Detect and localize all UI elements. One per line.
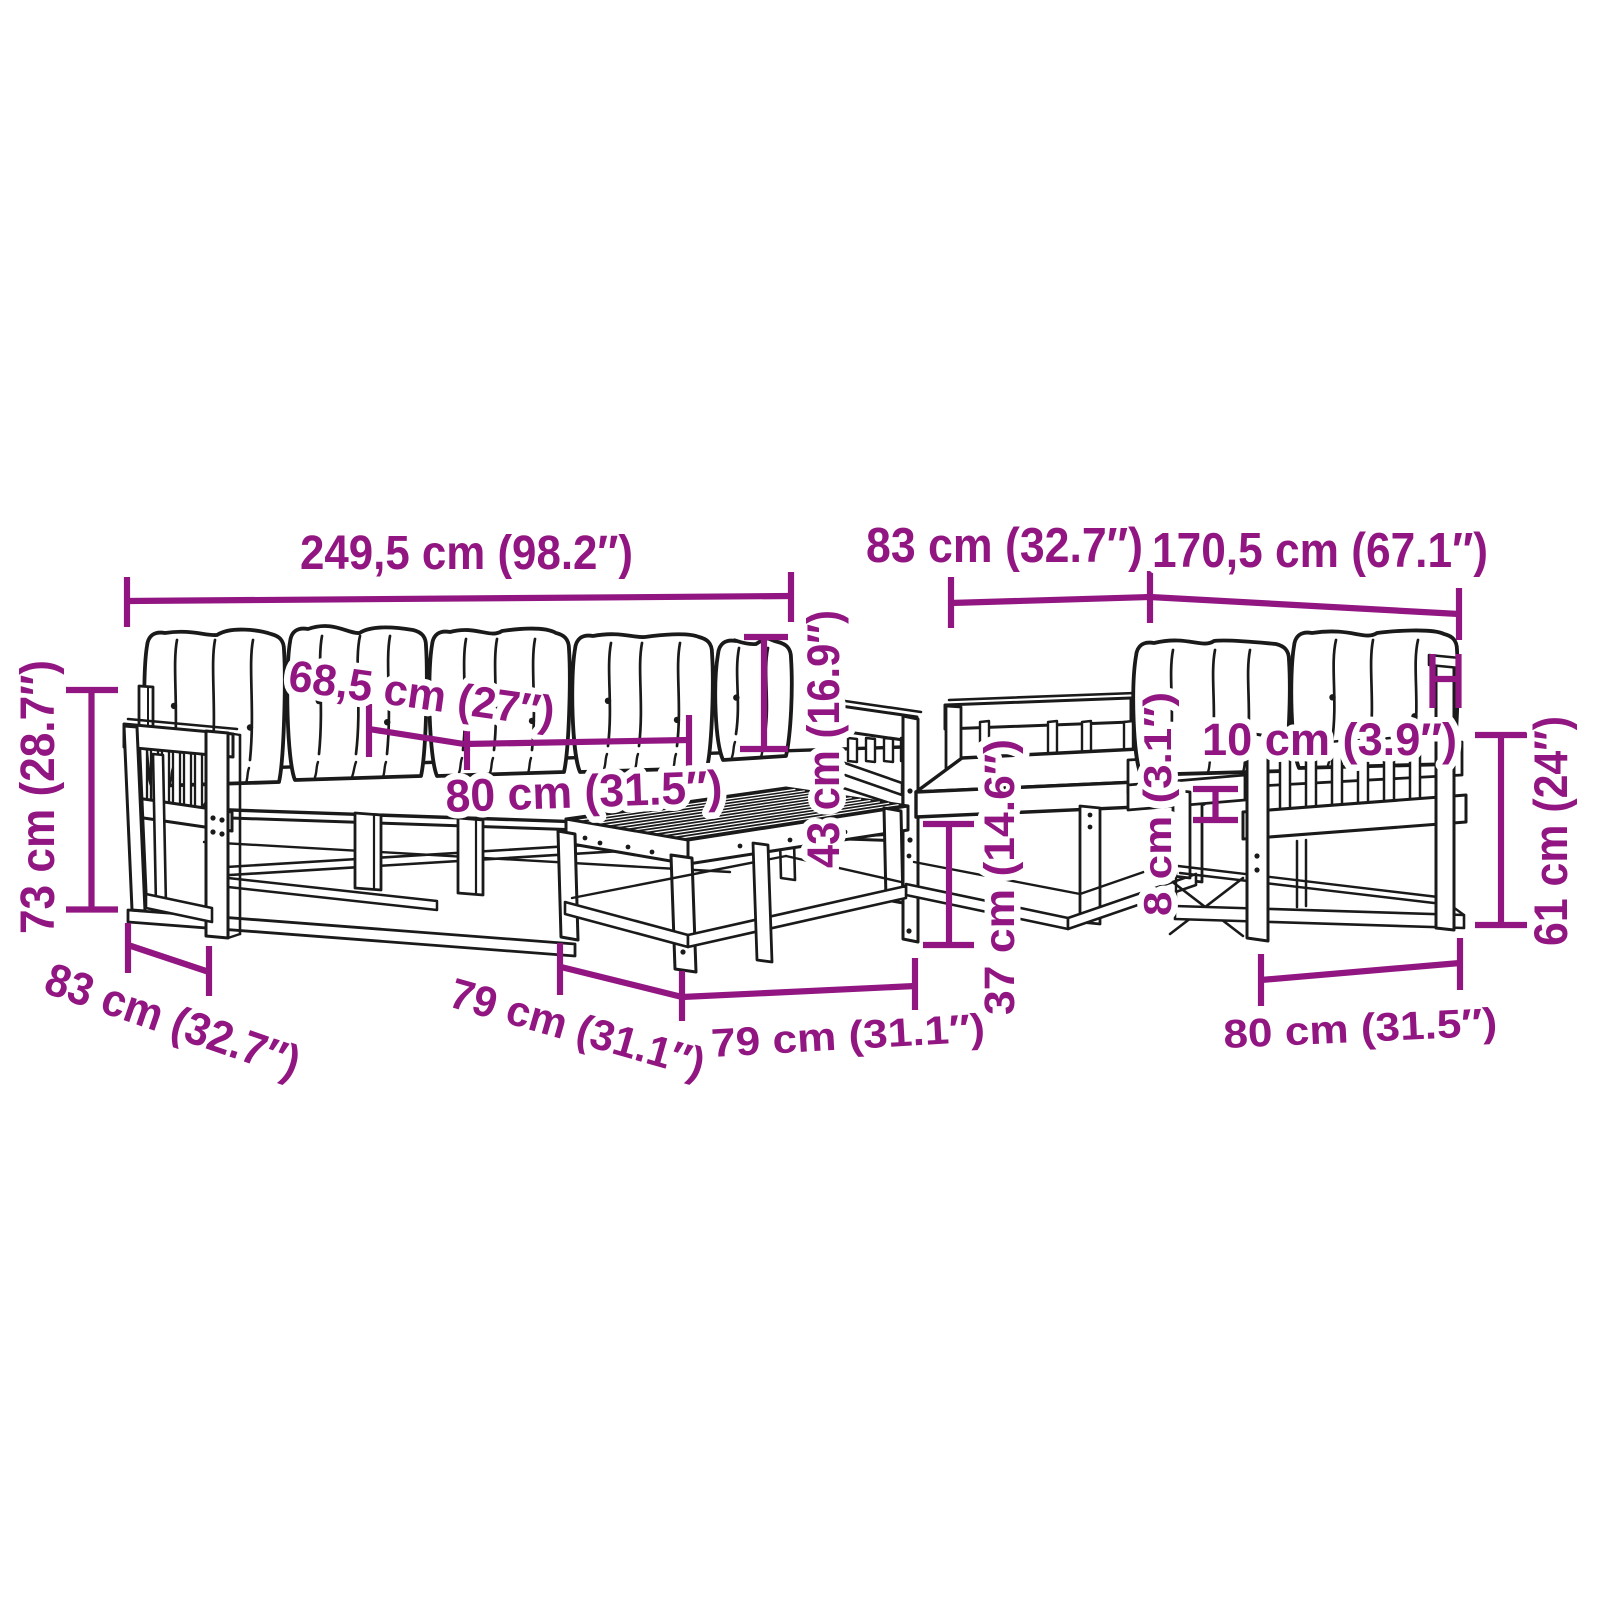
svg-text:249,5 cm (98.2″): 249,5 cm (98.2″) — [300, 527, 633, 580]
svg-text:43 cm (16.9″): 43 cm (16.9″) — [798, 610, 849, 868]
svg-text:61 cm (24″): 61 cm (24″) — [1524, 716, 1577, 946]
svg-text:8 cm (3.1″): 8 cm (3.1″) — [1137, 692, 1180, 916]
svg-text:80 cm (31.5″): 80 cm (31.5″) — [445, 760, 724, 822]
svg-text:170,5 cm (67.1″): 170,5 cm (67.1″) — [1152, 524, 1488, 578]
svg-text:83 cm (32.7″): 83 cm (32.7″) — [866, 519, 1143, 573]
svg-text:37 cm (14.6″): 37 cm (14.6″) — [976, 739, 1024, 1015]
svg-text:10 cm (3.9″): 10 cm (3.9″) — [1202, 714, 1457, 765]
svg-text:73 cm (28.7″): 73 cm (28.7″) — [12, 660, 65, 934]
